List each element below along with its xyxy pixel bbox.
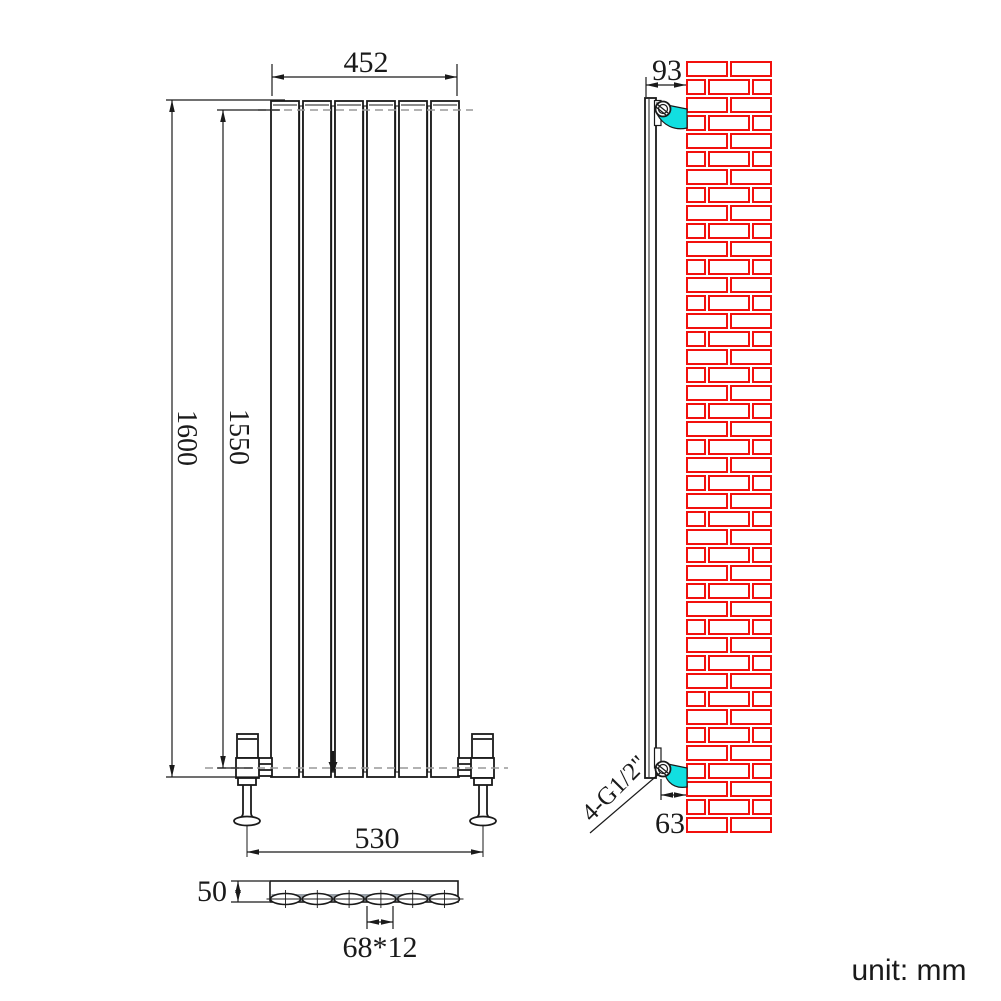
brick xyxy=(687,422,727,436)
brick xyxy=(687,728,705,742)
brick xyxy=(709,584,749,598)
brick xyxy=(753,224,771,238)
front-view: 452 1600 1550 530 xyxy=(166,46,508,857)
brick xyxy=(709,692,749,706)
brick xyxy=(687,692,705,706)
brick xyxy=(687,386,727,400)
brick xyxy=(687,548,705,562)
brick xyxy=(709,188,749,202)
brick xyxy=(753,512,771,526)
screw-icon-top xyxy=(656,102,671,117)
brick xyxy=(731,98,771,112)
brick xyxy=(687,494,727,508)
brick xyxy=(731,206,771,220)
brick xyxy=(687,656,705,670)
dim-depth xyxy=(231,881,269,902)
brick xyxy=(731,350,771,364)
brick xyxy=(687,206,727,220)
dim-label-1550: 1550 xyxy=(223,409,254,465)
brick xyxy=(687,530,727,544)
brick xyxy=(709,728,749,742)
brick xyxy=(731,818,771,832)
brick xyxy=(753,764,771,778)
dim-label-63: 63 xyxy=(655,807,685,840)
brick xyxy=(709,368,749,382)
brick xyxy=(687,332,705,346)
brick xyxy=(753,116,771,130)
brick xyxy=(753,620,771,634)
brick xyxy=(753,80,771,94)
brick xyxy=(753,728,771,742)
brick xyxy=(709,224,749,238)
drawing-svg: 93 63 4-G1/2" xyxy=(0,0,1001,1001)
brick xyxy=(731,638,771,652)
brick xyxy=(709,548,749,562)
brick xyxy=(753,188,771,202)
brick xyxy=(709,476,749,490)
brick xyxy=(753,404,771,418)
brick xyxy=(687,314,727,328)
dim-label-68x12: 68*12 xyxy=(343,931,418,964)
brick xyxy=(731,422,771,436)
brick xyxy=(709,512,749,526)
brick xyxy=(709,764,749,778)
brick xyxy=(687,368,705,382)
brick xyxy=(687,638,727,652)
brick xyxy=(753,656,771,670)
brick xyxy=(709,440,749,454)
brick xyxy=(753,440,771,454)
brick xyxy=(731,710,771,724)
brick xyxy=(731,674,771,688)
brick-wall-icon xyxy=(687,62,771,832)
brick xyxy=(687,512,705,526)
brick xyxy=(753,368,771,382)
radiator-technical-drawing: 93 63 4-G1/2" xyxy=(0,0,1001,1001)
brick xyxy=(731,530,771,544)
dim-label-1600: 1600 xyxy=(171,410,202,466)
brick xyxy=(687,98,727,112)
brick xyxy=(687,566,727,580)
brick xyxy=(753,548,771,562)
brick xyxy=(687,584,705,598)
brick xyxy=(687,818,727,832)
brick xyxy=(687,710,727,724)
unit-label: unit: mm xyxy=(851,954,966,987)
dim-label-452: 452 xyxy=(344,46,389,79)
brick xyxy=(687,602,727,616)
radiator-side-profile xyxy=(645,98,656,778)
brick xyxy=(687,260,705,274)
brick xyxy=(687,116,705,130)
brick xyxy=(687,476,705,490)
valve-left xyxy=(234,734,272,857)
brick xyxy=(753,332,771,346)
brick xyxy=(687,188,705,202)
brick xyxy=(731,458,771,472)
brick xyxy=(709,260,749,274)
brick xyxy=(753,692,771,706)
brick xyxy=(753,476,771,490)
brick xyxy=(687,152,705,166)
brick xyxy=(687,80,705,94)
brick xyxy=(709,404,749,418)
brick xyxy=(687,224,705,238)
brick xyxy=(731,386,771,400)
brick xyxy=(687,674,727,688)
brick xyxy=(687,764,705,778)
brick xyxy=(687,134,727,148)
brick xyxy=(731,566,771,580)
brick xyxy=(731,278,771,292)
brick xyxy=(731,746,771,760)
brick xyxy=(687,782,727,796)
brick xyxy=(731,314,771,328)
brick xyxy=(687,800,705,814)
brick xyxy=(753,296,771,310)
brick xyxy=(709,116,749,130)
brick xyxy=(687,350,727,364)
brick xyxy=(709,80,749,94)
brick xyxy=(709,656,749,670)
brick xyxy=(687,296,705,310)
dim-label-50: 50 xyxy=(197,875,227,908)
wall-bracket-bottom xyxy=(655,748,688,787)
brick xyxy=(687,404,705,418)
brick xyxy=(709,800,749,814)
wall-bracket-top xyxy=(655,101,688,129)
brick xyxy=(753,152,771,166)
dim-label-93: 93 xyxy=(652,54,682,87)
brick xyxy=(687,170,727,184)
brick xyxy=(687,746,727,760)
brick xyxy=(687,620,705,634)
brick xyxy=(687,278,727,292)
brick xyxy=(709,296,749,310)
valve-right xyxy=(458,734,496,857)
brick xyxy=(709,620,749,634)
dim-tube-size xyxy=(367,906,393,929)
brick xyxy=(731,782,771,796)
brick xyxy=(709,332,749,346)
brick xyxy=(731,134,771,148)
brick xyxy=(687,62,727,76)
brick xyxy=(731,170,771,184)
brick xyxy=(687,242,727,256)
brick xyxy=(731,602,771,616)
brick xyxy=(753,584,771,598)
brick xyxy=(731,62,771,76)
dim-label-530: 530 xyxy=(355,822,400,855)
brick xyxy=(753,260,771,274)
brick xyxy=(731,242,771,256)
brick xyxy=(687,440,705,454)
brick xyxy=(687,458,727,472)
section-view: 50 68*12 xyxy=(197,875,464,964)
brick xyxy=(731,494,771,508)
side-view: 93 63 4-G1/2" xyxy=(577,54,771,840)
brick xyxy=(709,152,749,166)
brick xyxy=(753,800,771,814)
